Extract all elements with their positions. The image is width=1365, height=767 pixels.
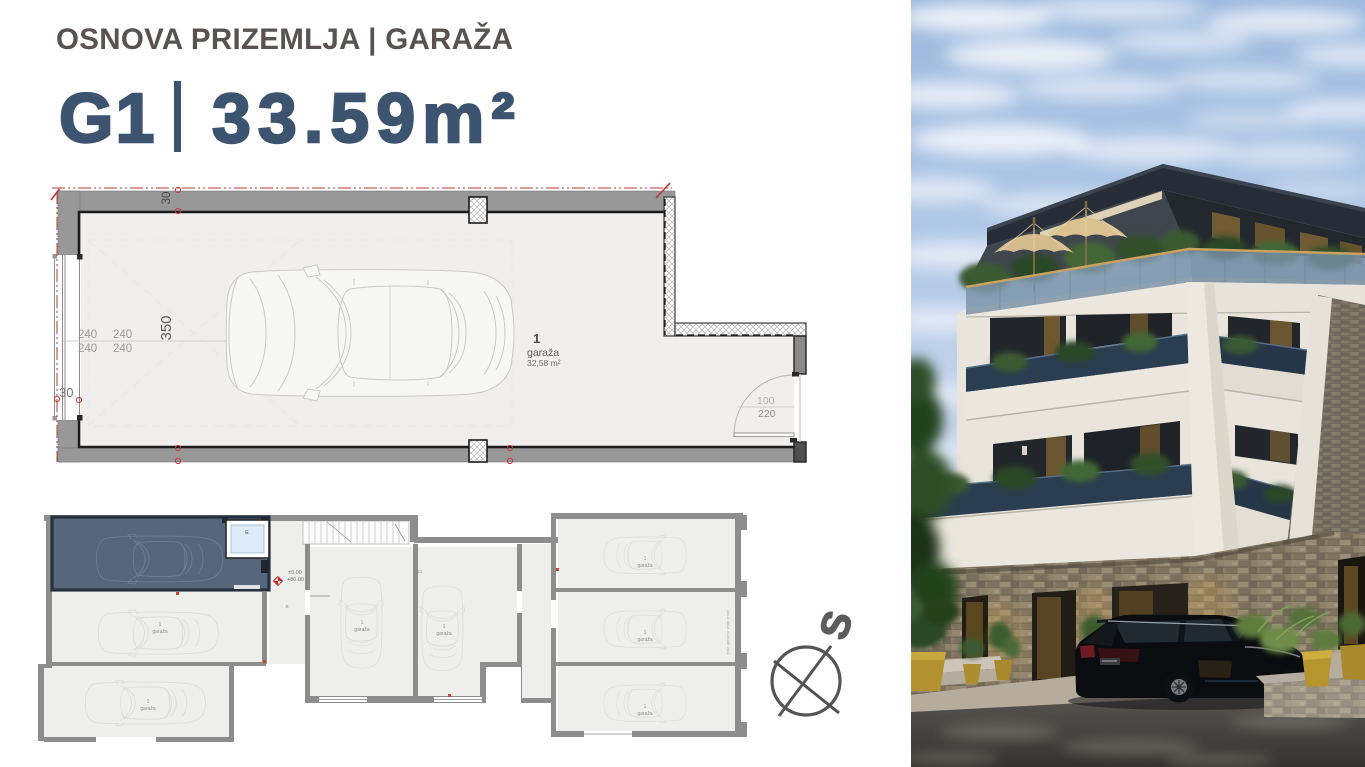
svg-text:220: 220 — [758, 408, 776, 420]
svg-text:garaža: garaža — [140, 706, 156, 712]
svg-text:S: S — [812, 606, 862, 645]
svg-text:±0.00: ±0.00 — [288, 570, 302, 576]
svg-text:240: 240 — [78, 343, 97, 355]
svg-text:E: E — [245, 530, 249, 536]
svg-text:33.59m²: 33.59m² — [212, 79, 522, 157]
svg-text:1: 1 — [147, 699, 150, 705]
svg-text:garaža: garaža — [152, 629, 168, 635]
svg-text:1: 1 — [644, 630, 647, 636]
svg-text:240: 240 — [113, 329, 132, 341]
svg-text:B: B — [285, 604, 288, 609]
svg-text:garaža: garaža — [354, 627, 370, 633]
svg-text:240: 240 — [113, 343, 132, 355]
svg-text:1: 1 — [644, 704, 647, 710]
svg-text:1: 1 — [644, 556, 647, 562]
svg-text:garaža: garaža — [637, 637, 653, 643]
svg-text:+80.00: +80.00 — [287, 577, 304, 583]
svg-text:21: 21 — [417, 569, 423, 574]
svg-text:240: 240 — [78, 329, 97, 341]
svg-text:OSNOVA PRIZEMLJA | GARAŽA: OSNOVA PRIZEMLJA | GARAŽA — [56, 22, 513, 56]
svg-text:garaža: garaža — [436, 631, 452, 637]
svg-text:1: 1 — [443, 624, 446, 630]
svg-text:30: 30 — [59, 385, 73, 400]
svg-text:G1: G1 — [59, 79, 156, 157]
svg-text:32,58 m²: 32,58 m² — [527, 358, 561, 368]
svg-text:garaža: garaža — [637, 711, 653, 717]
svg-text:1: 1 — [361, 620, 364, 626]
svg-text:mala garažna vrata zrnaš: mala garažna vrata zrnaš — [725, 610, 730, 655]
svg-text:1: 1 — [159, 622, 162, 628]
svg-text:garaža: garaža — [637, 563, 653, 569]
svg-text:100: 100 — [757, 395, 775, 407]
svg-text:1: 1 — [533, 331, 540, 346]
svg-text:350: 350 — [158, 315, 175, 340]
svg-text:30: 30 — [161, 192, 173, 205]
